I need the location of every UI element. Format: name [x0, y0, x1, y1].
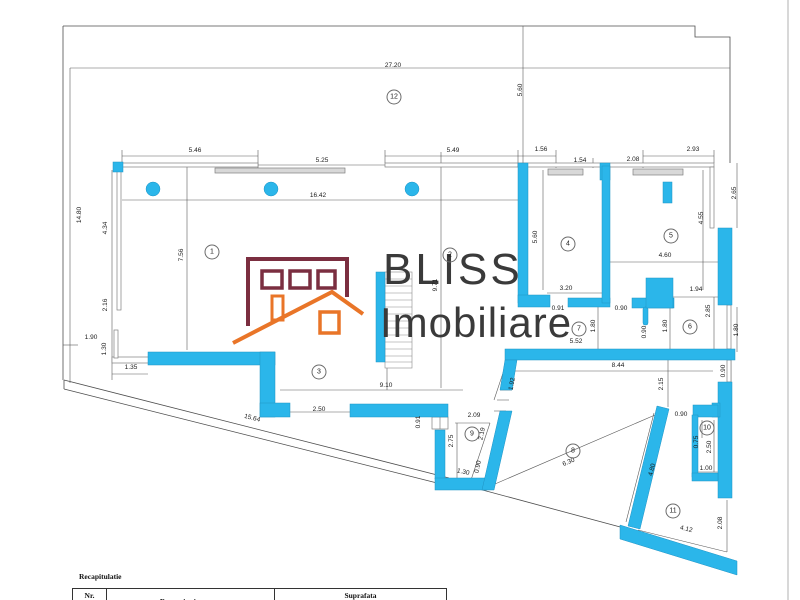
dim-label: 5.25: [316, 158, 329, 165]
dim-label: 1.94: [690, 287, 703, 294]
dim-label: 2.85: [706, 305, 713, 318]
room-label-3: 3: [312, 365, 327, 380]
column: [405, 182, 419, 196]
dim-label: 4.55: [699, 212, 706, 225]
house-roof: [233, 292, 363, 343]
dim-label: 0.90: [675, 412, 688, 419]
dim-label: 1.90: [85, 335, 98, 342]
dim-label: 0.91: [552, 306, 565, 313]
room-label-2: 2: [443, 248, 458, 263]
house-window: [318, 271, 335, 288]
dim-label: 3.20: [560, 286, 573, 293]
dim-label: 2.08: [718, 517, 725, 530]
dim-label: 1.80: [734, 324, 741, 337]
dim-label: 14.80: [77, 207, 84, 223]
floor-plan-page: BLISS Imobiliare 1 2 3 4 5 6 7 8 9 10 11…: [0, 0, 800, 600]
dim-label: 2.09: [468, 413, 481, 420]
dim-label: 1.35: [125, 365, 138, 372]
dim-label: 9.10: [380, 383, 393, 390]
dim-label: 5.60: [533, 231, 540, 244]
dim-label: 2.75: [449, 435, 456, 448]
room-label-1: 1: [205, 245, 220, 260]
dim-label: 5.46: [189, 148, 202, 155]
table-header-area: Suprafata: [275, 592, 446, 600]
room-label-10: 10: [700, 421, 715, 436]
recap-table: Nr. Denumire incapere Suprafata: [72, 588, 447, 600]
dim-label: 0.91: [416, 416, 423, 429]
column: [264, 182, 278, 196]
dim-label: 2.16: [103, 299, 110, 312]
room-label-4: 4: [561, 237, 576, 252]
dim-label: 1.00: [700, 466, 713, 473]
dim-label: 4.60: [659, 253, 672, 260]
dim-label: 0.90: [721, 365, 728, 378]
dim-label: 1.80: [663, 320, 670, 333]
dim-label: 27.20: [385, 63, 401, 70]
dim-label: 2.15: [659, 378, 666, 391]
room-label-7: 7: [572, 322, 587, 337]
room-label-11: 11: [666, 504, 681, 519]
room-label-5: 5: [664, 229, 679, 244]
logo-text-imobiliare: Imobiliare: [380, 302, 572, 344]
dim-label: 5.52: [570, 339, 583, 346]
dim-label: 4.34: [103, 222, 110, 235]
house-window: [290, 271, 310, 288]
dim-label: 1.30: [102, 343, 109, 356]
dim-label: 7.56: [179, 249, 186, 262]
bliss-logo-house: [233, 259, 363, 343]
column: [146, 182, 160, 196]
table-title: Recapitulatie: [79, 572, 122, 581]
dim-label: 5.60: [518, 84, 525, 97]
dim-label: 2.93: [687, 147, 700, 154]
dim-label: 16.42: [310, 193, 326, 200]
dim-label: 1.56: [535, 147, 548, 154]
room-label-12: 12: [387, 90, 402, 105]
house-small-window: [320, 312, 339, 333]
dim-label: 0.90: [615, 306, 628, 313]
dim-label: 2.65: [732, 187, 739, 200]
room-label-6: 6: [683, 320, 698, 335]
walls: [113, 162, 737, 575]
dim-label: 8.44: [612, 363, 625, 370]
house-window: [262, 271, 282, 288]
dim-label: 1.80: [591, 320, 598, 333]
windows: [112, 163, 731, 429]
dim-label: 5.49: [447, 148, 460, 155]
dim-label: 2.50: [707, 441, 714, 454]
dim-label: 0.90: [642, 326, 649, 339]
table-header-nr: Nr.: [73, 592, 106, 600]
dim-label: 2.50: [313, 407, 326, 414]
dim-label: 9.71: [433, 279, 440, 292]
dim-label: 2.08: [627, 157, 640, 164]
dim-label: 1.54: [574, 158, 587, 165]
dim-label: 0.75: [694, 436, 701, 449]
